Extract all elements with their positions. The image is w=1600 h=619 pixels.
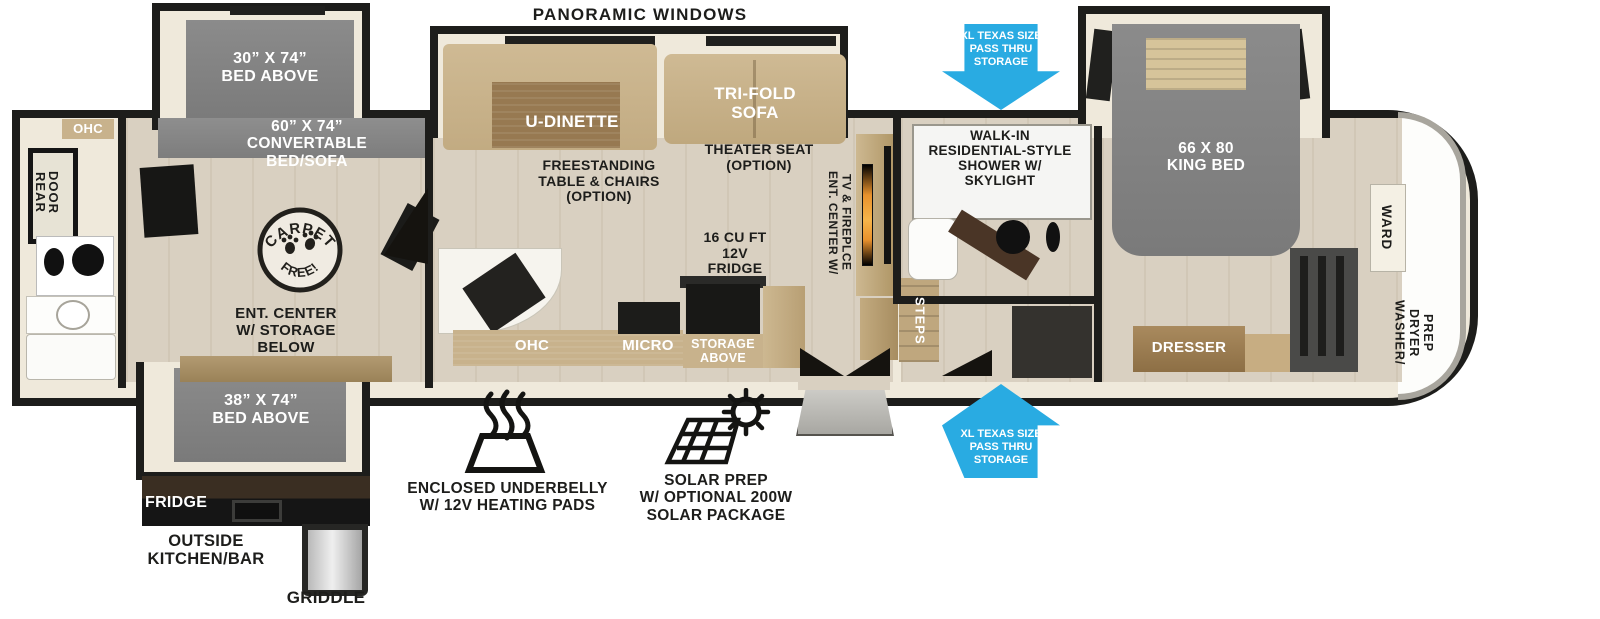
fridge-16-label: 16 CU FT 12V FRIDGE bbox=[686, 230, 784, 277]
washer-door-icon bbox=[44, 248, 64, 276]
pass-thru-top-label: XL TEXAS SIZE PASS THRU STORAGE bbox=[942, 30, 1060, 69]
dryer-door-icon bbox=[72, 244, 104, 276]
outside-fridge-label: FRIDGE bbox=[145, 494, 225, 512]
rear-toilet bbox=[56, 300, 90, 330]
floorplan-canvas: CARPET FREE! bbox=[0, 0, 1600, 619]
pantry-cabinet bbox=[763, 286, 805, 368]
bunk-top-window bbox=[230, 6, 325, 15]
ward-label: WARD bbox=[1378, 194, 1396, 262]
bunkroom-tv bbox=[140, 164, 199, 238]
micro-label: MICRO bbox=[612, 338, 684, 355]
hall-cabinet bbox=[860, 298, 898, 360]
steps-label: STEPS bbox=[912, 288, 928, 354]
solar-panel-sun-icon bbox=[660, 388, 775, 476]
ent-center-tv-label: ENT. CENTER W/ TV & FIREPLCE bbox=[826, 150, 856, 295]
griddle-label: GRIDDLE bbox=[276, 588, 376, 607]
fireplace bbox=[862, 164, 873, 266]
microwave bbox=[618, 302, 680, 334]
theater-seat-label: THEATER SEAT (OPTION) bbox=[692, 142, 826, 173]
u-dinette-label: U-DINETTE bbox=[492, 112, 652, 131]
outside-kitchen-vent bbox=[232, 500, 282, 522]
kitchen-ohc-label: OHC bbox=[502, 338, 562, 355]
freestanding-table-label: FREESTANDING TABLE & CHAIRS (OPTION) bbox=[510, 158, 688, 205]
walk-in-shower-label: WALK-IN RESIDENTIAL-STYLE SHOWER W/ SKYL… bbox=[916, 128, 1084, 188]
king-pillow bbox=[1146, 38, 1246, 90]
closet-slat-3 bbox=[1336, 256, 1344, 356]
convertible-bed-label: 60” X 74” CONVERTABLE BED/SOFA bbox=[228, 118, 386, 170]
heat-waves-icon bbox=[455, 388, 555, 478]
bunk-bottom-bed-label: 38” X 74” BED ABOVE bbox=[182, 392, 340, 428]
carpet-free-stamp-icon: CARPET FREE! bbox=[254, 204, 346, 296]
closet-slat-2 bbox=[1318, 256, 1326, 356]
rear-bath-shower bbox=[26, 334, 116, 380]
dresser-label: DRESSER bbox=[1134, 340, 1244, 357]
bath-sink-oval bbox=[1046, 222, 1060, 252]
panoramic-windows-label: PANORAMIC WINDOWS bbox=[430, 5, 850, 24]
wall-living-hall bbox=[893, 112, 901, 304]
storage-above-label: STORAGE ABOVE bbox=[683, 337, 763, 365]
outside-kitchen-label: OUTSIDE KITCHEN/BAR bbox=[122, 532, 290, 569]
rear-door-label: REAR DOOR bbox=[34, 154, 64, 230]
king-bed-label: 66 X 80 KING BED bbox=[1140, 140, 1272, 175]
fridge-16cuft bbox=[686, 284, 760, 336]
closet-slat-1 bbox=[1300, 256, 1308, 356]
washer-dryer-prep-label: WASHER/ DRYER PREP bbox=[1392, 284, 1438, 382]
solar-prep-label: SOLAR PREP W/ OPTIONAL 200W SOLAR PACKAG… bbox=[630, 472, 802, 524]
tri-fold-sofa-label: TRI-FOLD SOFA bbox=[688, 84, 822, 122]
ent-center-cabinet-bunk bbox=[180, 356, 392, 382]
toilet-icon bbox=[996, 220, 1030, 254]
entry-steps-outside bbox=[796, 388, 894, 436]
tv-strip bbox=[884, 146, 891, 264]
wall-hall-bedroom-low bbox=[1094, 296, 1102, 382]
ent-center-storage-label: ENT. CENTER W/ STORAGE BELOW bbox=[212, 306, 360, 356]
down-arrow-icon: XL TEXAS SIZE PASS THRU STORAGE bbox=[942, 24, 1060, 110]
pass-thru-bottom-label: XL TEXAS SIZE PASS THRU STORAGE bbox=[942, 428, 1060, 467]
wall-bath-bunk bbox=[118, 112, 126, 388]
griddle-box bbox=[302, 524, 368, 596]
wall-bath-bedroom bbox=[1094, 126, 1102, 304]
bath-closet-dark bbox=[1012, 306, 1092, 378]
living-window-right bbox=[706, 36, 836, 46]
enclosed-underbelly-label: ENCLOSED UNDERBELLY W/ 12V HEATING PADS bbox=[400, 480, 615, 515]
rear-ohc-label: OHC bbox=[62, 122, 114, 137]
bunk-top-bed-label: 30” X 74” BED ABOVE bbox=[190, 50, 350, 86]
